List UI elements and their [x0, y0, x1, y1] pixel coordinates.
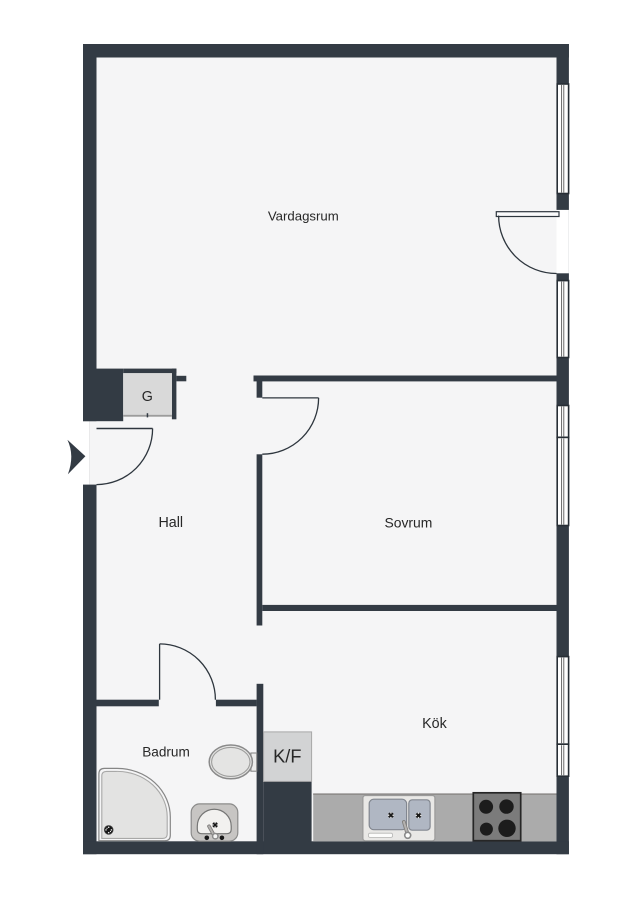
svg-text:Vardagsrum: Vardagsrum [268, 208, 339, 223]
svg-text:Sovrum: Sovrum [384, 514, 432, 530]
svg-text:Kök: Kök [422, 716, 447, 732]
svg-text:G: G [142, 389, 153, 405]
svg-text:Hall: Hall [158, 515, 183, 531]
svg-text:Badrum: Badrum [142, 744, 190, 759]
svg-text:K/F: K/F [273, 746, 301, 766]
